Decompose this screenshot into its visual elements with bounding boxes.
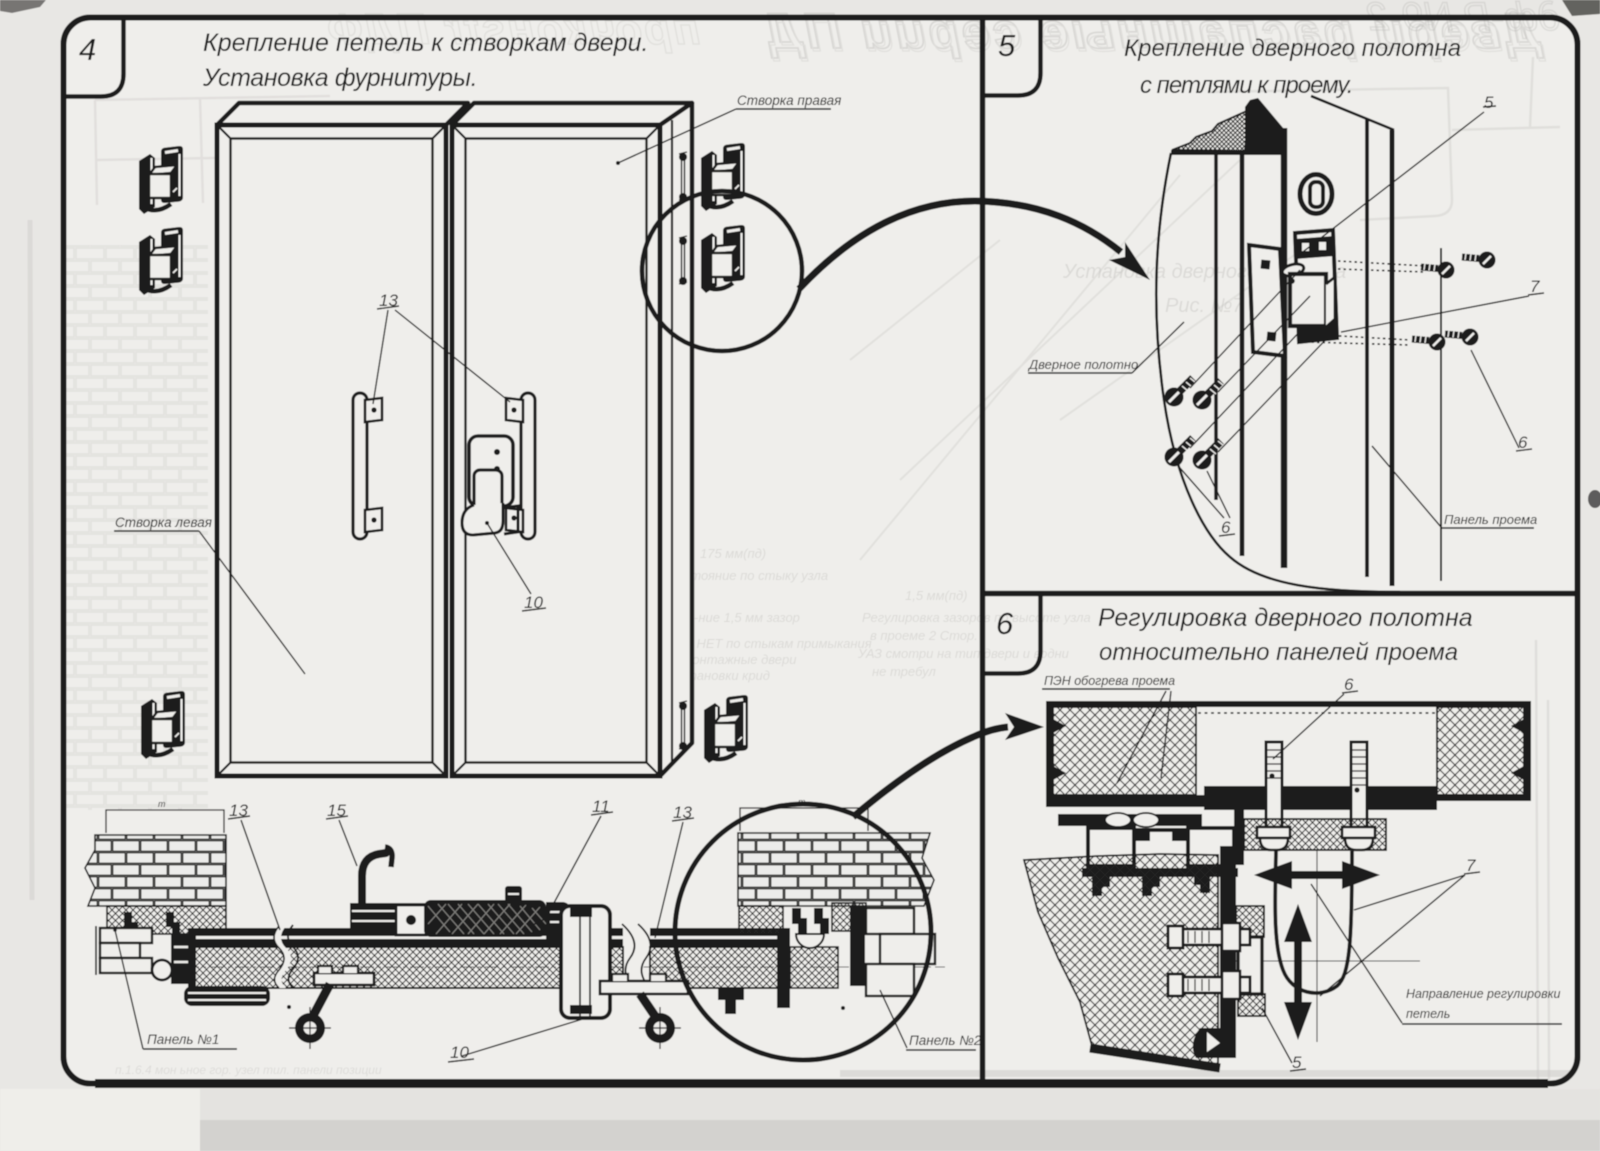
- svg-text:ПЭН обогрева проема: ПЭН обогрева проема: [1044, 674, 1175, 688]
- svg-text:m: m: [158, 799, 166, 809]
- svg-text:10: 10: [450, 1043, 469, 1062]
- svg-text:петель: петель: [1406, 1007, 1450, 1021]
- svg-text:Панель проема: Панель проема: [1444, 512, 1537, 527]
- svg-text:4: 4: [79, 32, 96, 67]
- svg-text:не требул: не требул: [872, 664, 937, 679]
- svg-text:1,5 мм(пд): 1,5 мм(пд): [905, 588, 968, 603]
- svg-text:Панель №1: Панель №1: [147, 1032, 219, 1047]
- svg-text:Створка левая: Створка левая: [115, 515, 212, 530]
- svg-text:с петлями к проему.: с петлями к проему.: [1140, 72, 1352, 99]
- svg-text:Установка фурнитуры.: Установка фурнитуры.: [202, 64, 477, 92]
- svg-text:Створка правая: Створка правая: [737, 93, 841, 108]
- svg-text:Крепление дверного полотна: Крепление дверного полотна: [1124, 35, 1461, 62]
- svg-text:Крепление петель к створкам дв: Крепление петель к створкам двери.: [203, 29, 648, 57]
- svg-text:5: 5: [1484, 93, 1494, 112]
- svg-text:относительно панелей проема: относительно панелей проема: [1099, 639, 1458, 666]
- svg-text:п.1.6.4 мон ьное гор. узел: п.1.6.4 мон ьное гор. узел тил. панели п…: [115, 1063, 382, 1077]
- svg-text:6: 6: [996, 606, 1014, 641]
- svg-text:Панель №2: Панель №2: [909, 1033, 982, 1048]
- svg-text:Регулировка дверного полотна: Регулировка дверного полотна: [1098, 604, 1473, 632]
- svg-text:УАЗ смотри на тип двери и водн: УАЗ смотри на тип двери и водни: [857, 646, 1069, 661]
- svg-text:175 мм(пд): 175 мм(пд): [700, 546, 766, 561]
- svg-text:в проеме 2 Стор.: в проеме 2 Стор.: [870, 628, 978, 643]
- svg-text:Дверное полотно: Дверное полотно: [1027, 357, 1138, 372]
- svg-text:5: 5: [998, 28, 1016, 63]
- svg-text:Направление регулировки: Направление регулировки: [1406, 987, 1560, 1001]
- svg-text:Регулировка зазоров по высоте: Регулировка зазоров по высоте узла: [862, 610, 1091, 625]
